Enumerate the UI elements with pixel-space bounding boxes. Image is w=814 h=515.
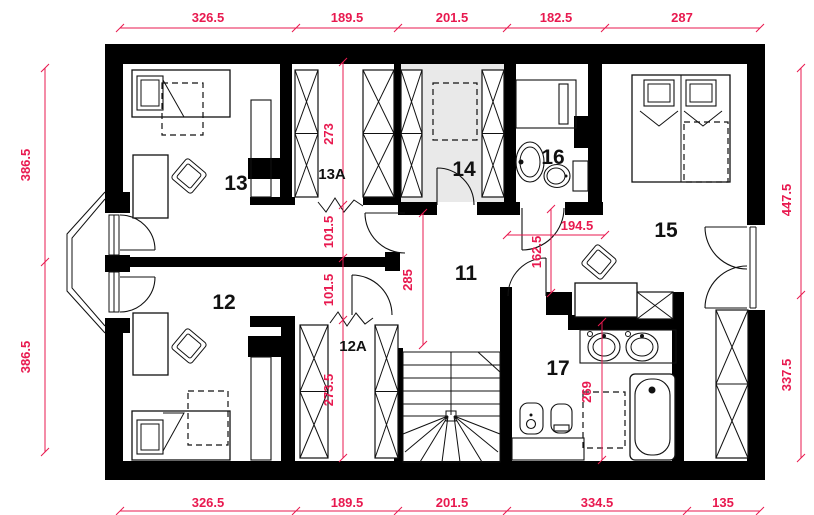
desk-12 [133, 313, 168, 375]
dim-passage-lower: 101.5 [321, 274, 336, 307]
room17-fixtures [512, 330, 676, 460]
dim-right-2: 337.5 [779, 359, 794, 392]
dim-hall-top: 194.5 [561, 218, 594, 233]
dim-bottom-5: 135 [712, 495, 734, 510]
room-label-13: 13 [224, 172, 247, 195]
toilet-17 [520, 403, 543, 434]
room-label-11: 11 [455, 262, 478, 285]
dim-bath17: 269 [579, 381, 594, 403]
dim-top-4: 182.5 [540, 10, 573, 25]
bay-door-room12 [120, 277, 155, 312]
chair-15 [581, 244, 618, 281]
room-label-12: 12 [212, 291, 235, 314]
dim-closet12a: 273.5 [321, 374, 336, 407]
room-label-15: 15 [654, 219, 678, 242]
room-label-12a: 12A [339, 338, 367, 355]
balcony-door-upper [705, 227, 747, 269]
toilet-16-tank [573, 161, 588, 191]
desk-15 [575, 283, 637, 317]
counter-16 [516, 80, 576, 128]
staircase [403, 352, 500, 462]
desk-13 [133, 155, 168, 218]
bath-ledge-17 [512, 438, 584, 460]
dim-bottom-4: 334.5 [581, 495, 614, 510]
dim-top-5: 287 [671, 10, 693, 25]
room12-furniture [132, 313, 271, 460]
dim-top-1: 326.5 [192, 10, 225, 25]
shelf-13 [251, 100, 271, 197]
chair-12 [171, 328, 208, 365]
dim-left-2: 386.5 [18, 341, 33, 374]
dim-hall-length: 285 [400, 269, 415, 291]
floor-plan-canvas: 326.5 189.5 201.5 182.5 287 326.5 189.5 … [0, 0, 814, 515]
dim-passage-upper: 101.5 [321, 216, 336, 249]
room-label-17: 17 [546, 357, 569, 380]
dim-closet13a: 273 [321, 123, 336, 145]
dim-bottom-1: 326.5 [192, 495, 225, 510]
room13-furniture [132, 70, 271, 218]
dim-right-1: 447.5 [779, 184, 794, 217]
balcony-door-glazing [750, 227, 756, 308]
door-room12 [352, 275, 392, 315]
balcony-door-lower [705, 266, 747, 308]
dim-left-1: 386.5 [18, 149, 33, 182]
shelf-12 [251, 357, 271, 460]
dim-top-3: 201.5 [436, 10, 469, 25]
room-label-13a: 13A [318, 166, 346, 183]
dim-hall-side: 162.5 [529, 236, 544, 269]
room-label-16: 16 [541, 146, 564, 169]
bay-door-room13 [120, 215, 155, 250]
dim-top-2: 189.5 [331, 10, 364, 25]
room-label-14: 14 [452, 158, 476, 181]
dim-bottom-2: 189.5 [331, 495, 364, 510]
dim-bottom-3: 201.5 [436, 495, 469, 510]
door-room13 [365, 213, 405, 253]
floor-plan-page: 326.5 189.5 201.5 182.5 287 326.5 189.5 … [0, 0, 814, 515]
chair-13 [171, 158, 208, 195]
